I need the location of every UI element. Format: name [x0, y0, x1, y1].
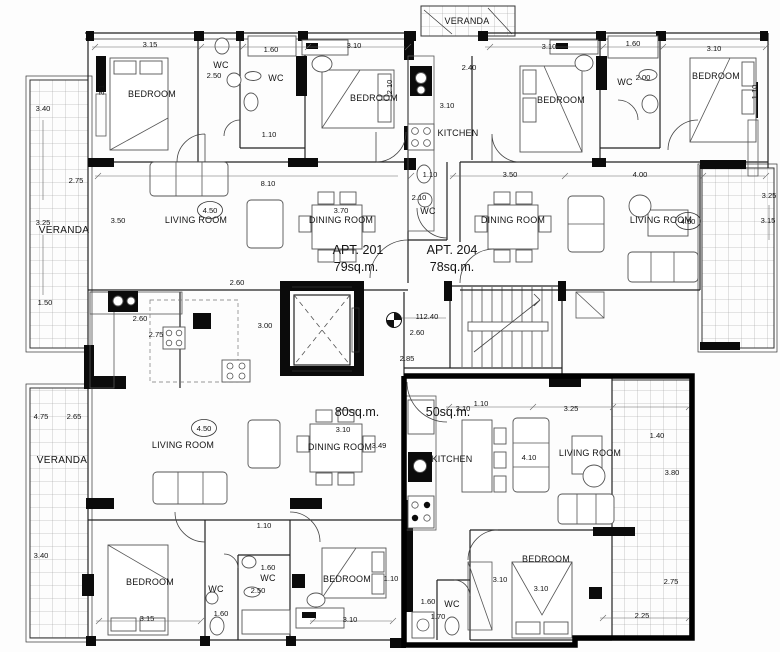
level-value: 112.40: [416, 312, 439, 321]
sofa-apt-br-2: [558, 494, 614, 524]
dim-label-47: 3.25: [36, 218, 51, 227]
sofa-apt201: [150, 162, 228, 196]
wc-top-right: WC: [617, 77, 633, 87]
sofa-apt204: [568, 196, 604, 252]
dining-set-apt204: [475, 192, 551, 262]
dim-label-76: 3.25: [564, 404, 579, 413]
bedroom-top-mid-right: BEDROOM: [537, 95, 585, 105]
door-wc-top-right: [618, 100, 638, 120]
dim-label-43: 3.10: [707, 44, 722, 53]
chair-apt-br: [583, 465, 605, 487]
dim-label-56: 3.70: [334, 206, 349, 215]
veranda-top: VERANDA: [445, 16, 490, 26]
dim-label-51: 1.10: [262, 130, 277, 139]
armchair-apt201: [247, 200, 283, 248]
dim-label-35: 2.50: [207, 71, 222, 80]
dim-label-49: 1.50: [38, 298, 53, 307]
door-bedroom-top-mid-right: [492, 134, 520, 162]
wardrobe-top-left: [96, 94, 106, 136]
dim-label-62: 3.00: [258, 321, 273, 330]
veranda-left-bottom-area: [30, 388, 88, 638]
dim-label-42: 2.00: [636, 73, 651, 82]
dim-label-71: 3.40: [34, 551, 49, 560]
bedroom-top-left: BEDROOM: [128, 89, 176, 99]
door-wc-top-left: [224, 120, 240, 136]
door-bedroom-top-mid-left: [376, 132, 406, 162]
apt-204-label: APT. 204: [427, 243, 478, 257]
living-room-apt-bl: LIVING ROOM: [152, 440, 214, 450]
dim-label-92: 2.25: [635, 611, 650, 620]
dim-label-33: 1.60: [264, 45, 279, 54]
bedroom-bottom-right: BEDROOM: [522, 554, 570, 564]
dim-label-64: 2.75: [149, 330, 164, 339]
living-room-apt-br: LIVING ROOM: [559, 448, 621, 458]
veranda-left-top-area: [30, 80, 88, 348]
dim-label-91: 2.75: [664, 577, 679, 586]
dim-label-84: 2.50: [251, 586, 266, 595]
bed-bottom-left-icon: [108, 545, 168, 635]
apt-bl-area: 80sq.m.: [335, 405, 379, 419]
dim-label-34: 3.10: [347, 41, 362, 50]
dim-label-75: 1.10: [474, 399, 489, 408]
wc-top-left: WC: [213, 60, 229, 70]
bed-top-mid-right-icon: [520, 66, 582, 152]
apt-204-area: 78sq.m.: [430, 260, 474, 274]
wc-top-left-2: WC: [268, 73, 284, 83]
dim-label-58: 4.50: [681, 217, 696, 226]
dim-label-72: 3.10: [336, 425, 351, 434]
dim-label-78: 1.40: [650, 431, 665, 440]
floor-plan-svg: BEDROOMWCWCBEDROOMVERANDAKITCHENBEDROOMW…: [0, 0, 780, 652]
dim-label-66: 2.60: [410, 328, 425, 337]
dining-room-apt201: DINING ROOM: [309, 215, 373, 225]
door-wc-bottom: [224, 554, 238, 568]
armchair-apt-bl: [248, 420, 280, 468]
dim-label-37: 3.10: [440, 101, 455, 110]
dim-label-39: 3.1: [97, 85, 106, 96]
veranda-left-bottom: VERANDA: [37, 455, 87, 466]
sofa-apt-bl: [153, 472, 227, 504]
veranda-right-bottom-area: [612, 380, 692, 638]
dim-label-83: 1.60: [261, 563, 276, 572]
door-bedroom-bottom-mid: [290, 512, 320, 542]
wc-bottom-1: WC: [208, 584, 224, 594]
door-bedroom-bottom-left: [175, 512, 205, 542]
dim-label-48: 3.50: [111, 216, 126, 225]
dining-room-apt-bl: DINING ROOM: [308, 442, 372, 452]
dim-label-86: 1.10: [384, 574, 399, 583]
dim-label-88: 3.10: [534, 584, 549, 593]
bed-top-left-icon: [110, 58, 168, 150]
dim-label-57: 4.50: [203, 206, 218, 215]
apt-201-label: APT. 201: [333, 243, 384, 257]
dim-label-89: 1.60: [421, 597, 436, 606]
dim-label-32: 3.15: [143, 40, 158, 49]
dim-label-79: 3.80: [665, 468, 680, 477]
kitchen-apt-br: KITCHEN: [432, 454, 473, 464]
door-bedroom-top-left: [177, 134, 205, 162]
dim-label-61: 2.60: [230, 278, 245, 287]
dim-label-46: 2.75: [69, 176, 84, 185]
dim-label-85: 3.10: [343, 615, 358, 624]
dim-label-60: 3.15: [761, 216, 776, 225]
dim-label-81: 3.15: [140, 614, 155, 623]
dim-label-80: 1.10: [257, 521, 272, 530]
dim-label-40: 3.10: [542, 42, 557, 51]
elevator: [292, 287, 359, 371]
sofa-apt204-long: [628, 252, 698, 282]
dim-label-59: 3.25: [762, 191, 777, 200]
dim-label-70: 4.50: [197, 424, 212, 433]
dim-label-54: 4.00: [633, 170, 648, 179]
bed-bottom-mid-icon: [322, 548, 386, 598]
dim-label-38: 2.10: [385, 80, 394, 95]
bedroom-top-right: BEDROOM: [692, 71, 740, 81]
kitchen-bl-appliances: [90, 291, 250, 388]
dim-label-87: 3.10: [493, 575, 508, 584]
stair-side-box-diag: [576, 292, 604, 318]
wc-bottom-2: WC: [260, 573, 276, 583]
dim-label-45: 3.40: [36, 104, 51, 113]
dim-label-50: 8.10: [261, 179, 276, 188]
floor-plan-page: BEDROOMWCWCBEDROOMVERANDAKITCHENBEDROOMW…: [0, 0, 780, 652]
dim-label-44: 1.10: [750, 85, 759, 100]
stairs: [462, 287, 604, 367]
dim-label-73: 3.49: [372, 441, 387, 450]
dim-label-36: 2.40: [462, 63, 477, 72]
dim-label-53: 3.50: [503, 170, 518, 179]
dining-room-apt204: DINING ROOM: [481, 215, 545, 225]
kitchen-top-appliances: [408, 56, 434, 231]
elevator-x-icon: [294, 295, 350, 365]
bedroom-bottom-left: BEDROOM: [126, 577, 174, 587]
kitchen-top: KITCHEN: [438, 128, 479, 138]
desk-top-mid-left: [302, 40, 348, 72]
dim-label-55: 2.10: [412, 193, 427, 202]
wardrobe-bottom-right-diag: [468, 562, 492, 630]
dim-label-52: 1.10: [423, 170, 438, 179]
elevator-door-marks: [292, 287, 352, 371]
dim-label-63: 2.60: [133, 314, 148, 323]
dim-label-82: 1.60: [214, 609, 229, 618]
dim-label-74: 3.10: [456, 404, 471, 413]
wc-apt204-hall: WC: [420, 206, 436, 216]
stair-landing-rail: [468, 322, 548, 331]
dim-label-90: 1.70: [431, 612, 446, 621]
dim-label-68: 4.75: [34, 412, 49, 421]
bed-bottom-right-icon: [512, 562, 572, 638]
bedroom-bottom-mid: BEDROOM: [323, 574, 371, 584]
wc-bottom-3: WC: [444, 599, 460, 609]
dim-label-67: 2.85: [400, 354, 415, 363]
apt-201-area: 79sq.m.: [334, 260, 378, 274]
dim-label-77: 4.10: [522, 453, 537, 462]
dim-label-41: 1.60: [626, 39, 641, 48]
door-bedroom-bottom-right: [468, 530, 498, 560]
dim-label-69: 2.65: [67, 412, 82, 421]
